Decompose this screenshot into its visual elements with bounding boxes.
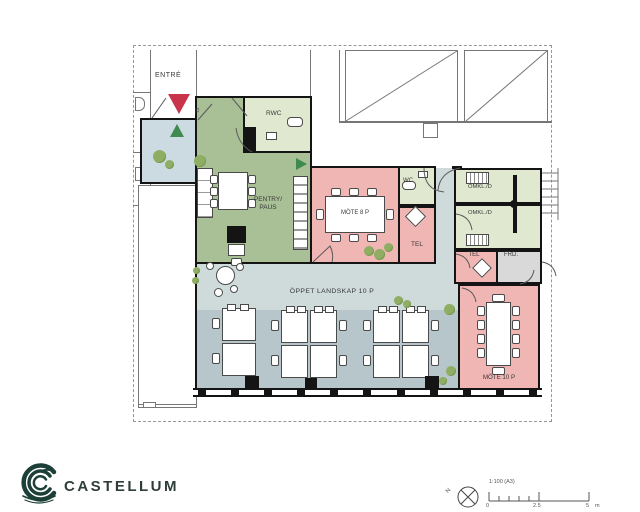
desk — [281, 310, 308, 343]
brand-wordmark: CASTELLUM — [64, 478, 179, 495]
tree-icon — [446, 366, 456, 376]
corridor-wall — [339, 50, 340, 123]
chair — [363, 320, 371, 331]
locker-bench — [466, 172, 489, 184]
sink-fixture — [266, 132, 277, 140]
chair — [248, 187, 256, 196]
void-area — [464, 50, 548, 122]
column-box — [423, 123, 438, 138]
locker-bench — [466, 234, 489, 246]
chair — [271, 355, 279, 366]
tree-icon — [384, 243, 393, 252]
label-tel-1: TEL — [398, 241, 436, 249]
chair — [477, 348, 485, 358]
scale-tick-25: 2.5 — [533, 503, 541, 509]
label-el: EL — [193, 108, 199, 114]
label-mote8: MÖTE 8 P — [325, 210, 385, 217]
chair — [210, 175, 218, 184]
chair — [212, 353, 220, 364]
chair — [236, 263, 244, 271]
monitor — [297, 306, 306, 313]
desk — [373, 310, 400, 343]
tree-icon — [194, 155, 206, 167]
label-pentry-2: PAUS — [238, 204, 298, 212]
chair — [339, 355, 347, 366]
entry-marker-icon — [168, 94, 190, 114]
scale-tick-5: 5 — [586, 503, 589, 509]
window-marker — [143, 402, 156, 408]
tree-icon — [193, 267, 200, 274]
corridor-wall — [133, 92, 150, 93]
tree-icon — [192, 277, 199, 284]
tree-icon — [439, 377, 447, 385]
chair — [386, 209, 394, 220]
corridor-wall — [310, 50, 311, 98]
chair — [349, 188, 359, 196]
chair — [512, 306, 520, 316]
chair — [248, 175, 256, 184]
label-frd: FRD. — [504, 252, 518, 259]
round-table — [216, 266, 235, 285]
void-area — [345, 50, 458, 122]
sink-fixture — [418, 171, 428, 178]
label-oppet-landskap: ÖPPET LANDSKAP 10 P — [252, 288, 412, 296]
chair — [477, 320, 485, 330]
chair — [271, 320, 279, 331]
chair — [230, 285, 238, 293]
pillar — [425, 376, 439, 390]
desk — [310, 345, 337, 378]
chair — [316, 209, 324, 220]
tree-icon — [364, 246, 374, 256]
scale-unit: m — [595, 503, 600, 509]
chair — [512, 348, 520, 358]
label-rwc: RWC — [266, 110, 281, 118]
chair — [331, 188, 341, 196]
chair — [477, 306, 485, 316]
chair — [431, 355, 439, 366]
monitor — [227, 304, 236, 311]
appliance — [227, 226, 246, 243]
wall-segment — [452, 166, 462, 169]
chair — [339, 320, 347, 331]
monitor — [240, 304, 249, 311]
desk — [222, 308, 256, 341]
monitor — [417, 306, 426, 313]
chair — [367, 188, 377, 196]
room-frd — [496, 250, 542, 284]
shaft — [243, 127, 256, 152]
adjacent-room — [138, 185, 197, 408]
label-entre: ENTRÉ — [155, 72, 181, 80]
pillar — [305, 378, 317, 390]
north-label: N — [445, 488, 453, 496]
label-wc: WC — [403, 178, 413, 185]
tree-icon — [403, 300, 411, 308]
label-tel-2: TEL — [454, 252, 494, 259]
counter-unit — [228, 244, 245, 256]
meeting-table-10 — [486, 302, 511, 366]
chair — [331, 234, 341, 242]
desk — [373, 345, 400, 378]
shower-fixture — [510, 200, 518, 208]
chair — [492, 294, 505, 302]
tree-icon — [444, 304, 455, 315]
label-pentry-1: PENTRY/ — [238, 196, 298, 204]
tree-icon — [394, 296, 403, 305]
chair — [512, 320, 520, 330]
direction-marker-icon — [296, 158, 307, 170]
tree-icon — [374, 249, 385, 260]
label-omkl-2: OMKL./D — [468, 210, 492, 217]
wc-fixture — [135, 97, 145, 111]
monitor — [314, 306, 323, 313]
desk — [281, 345, 308, 378]
desk — [402, 345, 429, 378]
exit-marker-icon — [170, 124, 184, 137]
scale-tick-0: 0 — [486, 503, 489, 509]
room-entrance-hall — [140, 118, 197, 184]
chair — [477, 334, 485, 344]
chair — [367, 234, 377, 242]
chair — [214, 288, 223, 297]
kitchen-counter — [293, 176, 308, 250]
corridor-wall — [196, 50, 197, 98]
desk — [402, 310, 429, 343]
monitor — [389, 306, 398, 313]
monitor — [286, 306, 295, 313]
label-mote10: MÖTE 10 P — [468, 374, 530, 381]
chair — [210, 187, 218, 196]
monitor — [325, 306, 334, 313]
chair — [363, 355, 371, 366]
chair — [512, 334, 520, 344]
toilet-fixture — [287, 117, 303, 127]
label-omkl-1: OMKL./D — [468, 184, 492, 191]
monitor — [378, 306, 387, 313]
desk — [310, 310, 337, 343]
chair — [206, 262, 214, 270]
tree-icon — [153, 150, 166, 163]
floor-plan-canvas: ENTRÉ EL RWC PENTRY/ PAUS MÖTE 8 P WC TE… — [0, 0, 640, 512]
scale-ratio-text: 1:100 (A3) — [489, 479, 515, 485]
chair — [431, 320, 439, 331]
chair — [212, 318, 220, 329]
castellum-logo-icon — [16, 460, 62, 506]
chair — [210, 199, 218, 208]
chair — [349, 234, 359, 242]
tree-icon — [165, 160, 174, 169]
pillar — [245, 376, 259, 390]
desk — [222, 343, 256, 376]
